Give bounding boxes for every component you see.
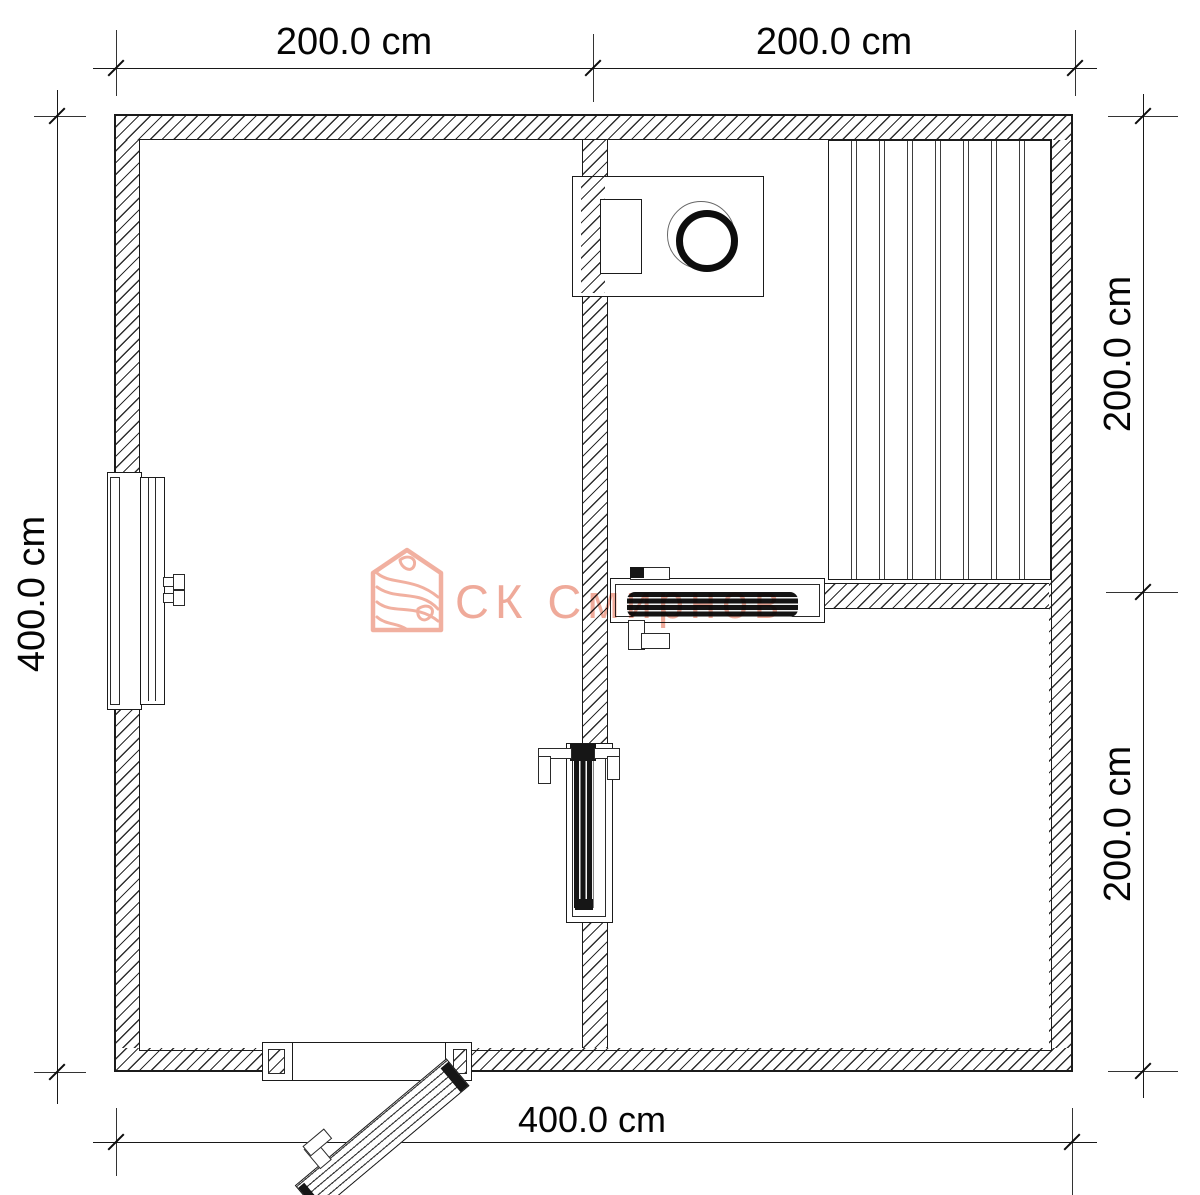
dimension-label-left: 400.0 cm [12, 516, 54, 672]
interior-wall-horizontal [824, 583, 1049, 609]
bench-slat-line [907, 141, 913, 579]
extension-line [34, 116, 86, 117]
window-handle-knob [173, 590, 185, 606]
interior-wall-vertical-lower [582, 920, 608, 1048]
slatted-bench-platform [828, 140, 1051, 580]
window-frame [140, 477, 165, 705]
window-frame-line [148, 478, 149, 701]
bench-slat-line [1019, 141, 1025, 579]
extension-line [116, 30, 117, 96]
floor-plan-canvas: 200.0 cm 200.0 cm 200.0 cm 200.0 cm 400.… [0, 0, 1200, 1195]
door-jamb-left [262, 1042, 293, 1081]
dimension-line-top [93, 68, 1097, 70]
dimension-line-left [57, 90, 59, 1104]
bench-slat-line [851, 141, 857, 579]
window-handle-knob [173, 574, 185, 590]
door-handle-right-grip [607, 756, 620, 780]
window-frame-line [155, 478, 156, 701]
dimension-label-top-left: 200.0 cm [254, 22, 454, 64]
extension-line [1072, 1108, 1073, 1195]
door-leaf [574, 757, 594, 908]
stove-firebox [600, 199, 642, 274]
door-leaf [627, 592, 798, 617]
jamb-hatch [268, 1049, 285, 1074]
chimney-pipe [676, 210, 738, 272]
bench-slat-line [963, 141, 969, 579]
bench-slat-line [991, 141, 997, 579]
dimension-label-right-top: 200.0 cm [1098, 276, 1140, 432]
dimension-label-bottom: 400.0 cm [492, 1100, 692, 1140]
door-end-block [575, 899, 593, 910]
door-hinge-block [570, 744, 596, 761]
door-leaf-end-cap [298, 1183, 324, 1195]
dimension-line-bottom [93, 1142, 1097, 1144]
window-outer-pane [110, 477, 120, 705]
dimension-label-right-bottom: 200.0 cm [1098, 746, 1140, 902]
extension-line [1075, 30, 1076, 96]
door-handle-left-grip [538, 756, 551, 784]
dimension-line-right [1143, 94, 1145, 1098]
bench-slat-line [935, 141, 941, 579]
dimension-label-top-right: 200.0 cm [734, 22, 934, 64]
bench-slat-line [879, 141, 885, 579]
door-handle-top-grip [630, 567, 644, 578]
extension-line [34, 1072, 86, 1073]
sauna-stove [572, 176, 764, 297]
door-handle-bottom [641, 633, 670, 649]
